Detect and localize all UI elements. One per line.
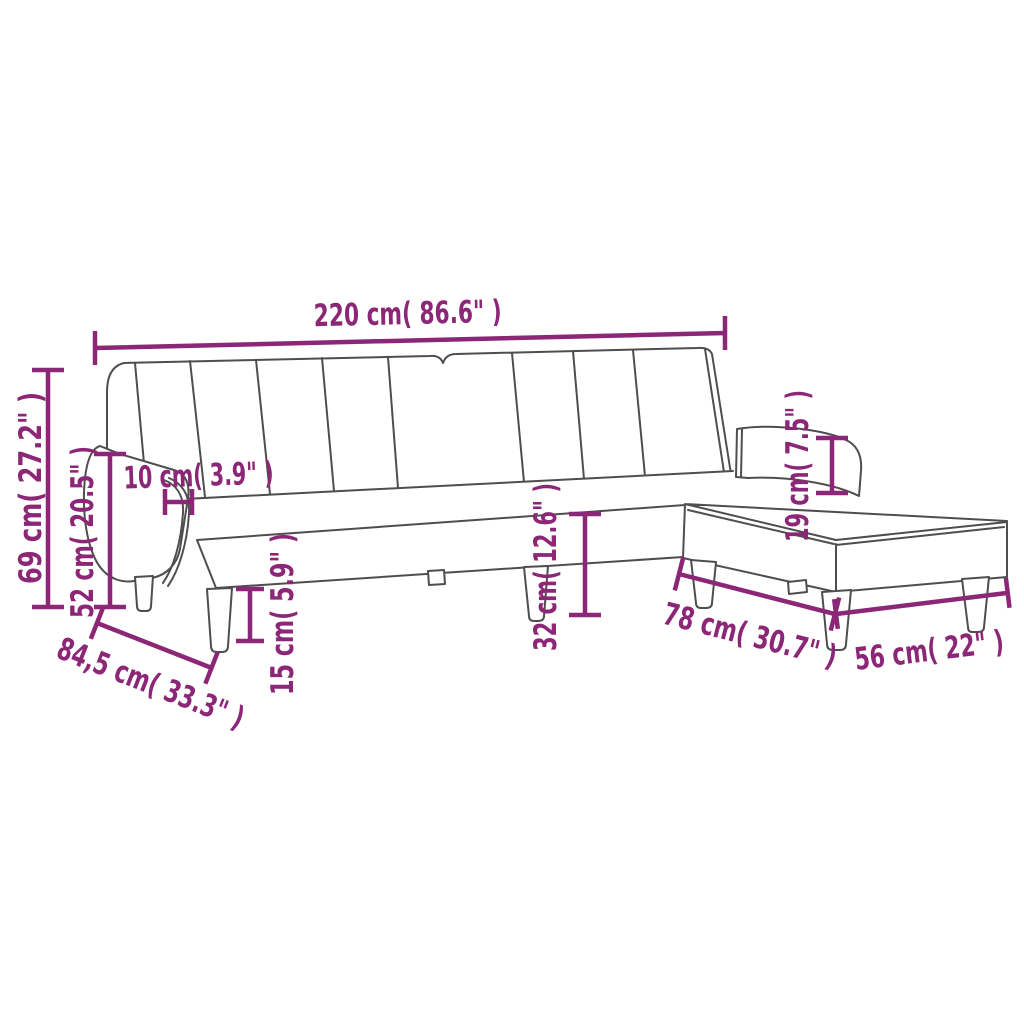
dimension-label-armrest-width: 10 cm( 3.9" ): [123, 455, 274, 496]
dimension-footstool-width: 56 cm( 22" ): [834, 578, 1016, 679]
dimension-label-seat-height: 32 cm( 12.6" ): [528, 483, 564, 651]
footstool-right-leg: [962, 577, 989, 632]
product-dimension-diagram: 220 cm( 86.6" ) 69 cm( 27.2" ) 52 cm( 20…: [0, 0, 1024, 1024]
footstool: [683, 504, 1007, 594]
sofa-front-left-leg: [207, 588, 232, 652]
dimension-label-armrest-height: 19 cm( 7.5" ): [780, 390, 816, 542]
dimension-line: [236, 589, 264, 641]
dimension-overall-height: 69 cm( 27.2" ): [13, 370, 64, 607]
sofa-rear-left-leg: [135, 576, 153, 611]
dimension-label-overall-width: 220 cm( 86.6" ): [313, 294, 502, 335]
dimension-label-footstool-width: 56 cm( 22" ): [853, 624, 1006, 678]
seat-mount-tab: [428, 570, 445, 585]
right-armrest-pad-seam: [741, 429, 742, 477]
dimension-label-overall-height: 69 cm( 27.2" ): [13, 392, 49, 584]
dimension-label-backrest-height: 52 cm( 20.5" ): [65, 446, 101, 618]
dimension-label-leg-height: 15 cm( 5.9" ): [265, 533, 301, 695]
sofa-dimension-drawing: 220 cm( 86.6" ) 69 cm( 27.2" ) 52 cm( 20…: [0, 0, 1024, 1024]
footstool-mount-tab: [788, 580, 807, 594]
